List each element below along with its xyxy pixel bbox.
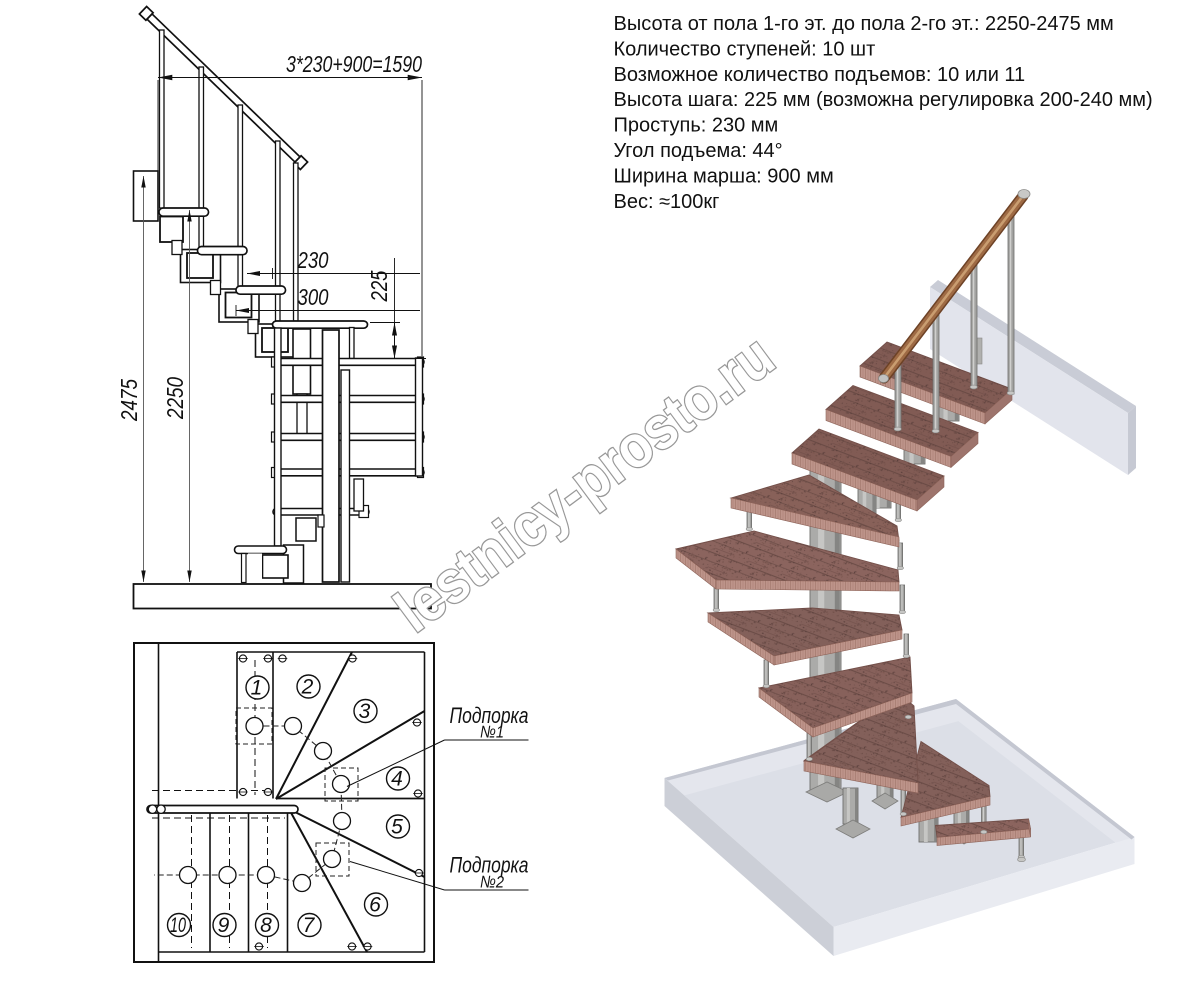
svg-text:Проступь: 230 мм: Проступь: 230 мм (614, 115, 779, 137)
svg-text:3*230+900=1590: 3*230+900=1590 (286, 51, 422, 77)
svg-text:2250: 2250 (162, 377, 188, 420)
svg-text:5: 5 (391, 816, 403, 839)
svg-text:lestnicy-prosto.ru: lestnicy-prosto.ru (383, 322, 786, 645)
svg-text:Вес: ≈100кг: Вес: ≈100кг (614, 191, 720, 213)
svg-text:9: 9 (218, 914, 230, 937)
svg-text:6: 6 (369, 894, 381, 917)
svg-text:Ширина марша: 900 мм: Ширина марша: 900 мм (614, 165, 834, 187)
svg-text:230: 230 (297, 247, 329, 273)
svg-text:300: 300 (298, 284, 329, 310)
svg-text:№2: №2 (480, 873, 504, 892)
svg-text:2475: 2475 (116, 379, 142, 422)
svg-text:2: 2 (301, 676, 314, 699)
svg-text:Возможное количество подъемов:: Возможное количество подъемов: 10 или 11 (614, 64, 1026, 86)
svg-text:10: 10 (170, 914, 186, 937)
svg-text:Высота от пола 1-го эт. до пол: Высота от пола 1-го эт. до пола 2-го эт.… (614, 13, 1114, 35)
svg-text:225: 225 (366, 270, 392, 302)
svg-text:№1: №1 (480, 723, 504, 742)
svg-text:1: 1 (251, 677, 263, 700)
svg-text:8: 8 (260, 914, 272, 937)
svg-text:4: 4 (391, 768, 403, 791)
svg-text:Количество ступеней: 10 шт: Количество ступеней: 10 шт (614, 38, 876, 60)
svg-text:3: 3 (359, 700, 371, 723)
svg-text:Высота шага: 225 мм (возможна: Высота шага: 225 мм (возможна регулировк… (614, 89, 1153, 111)
svg-text:Угол подъема: 44°: Угол подъема: 44° (614, 140, 783, 162)
svg-text:7: 7 (303, 914, 316, 937)
